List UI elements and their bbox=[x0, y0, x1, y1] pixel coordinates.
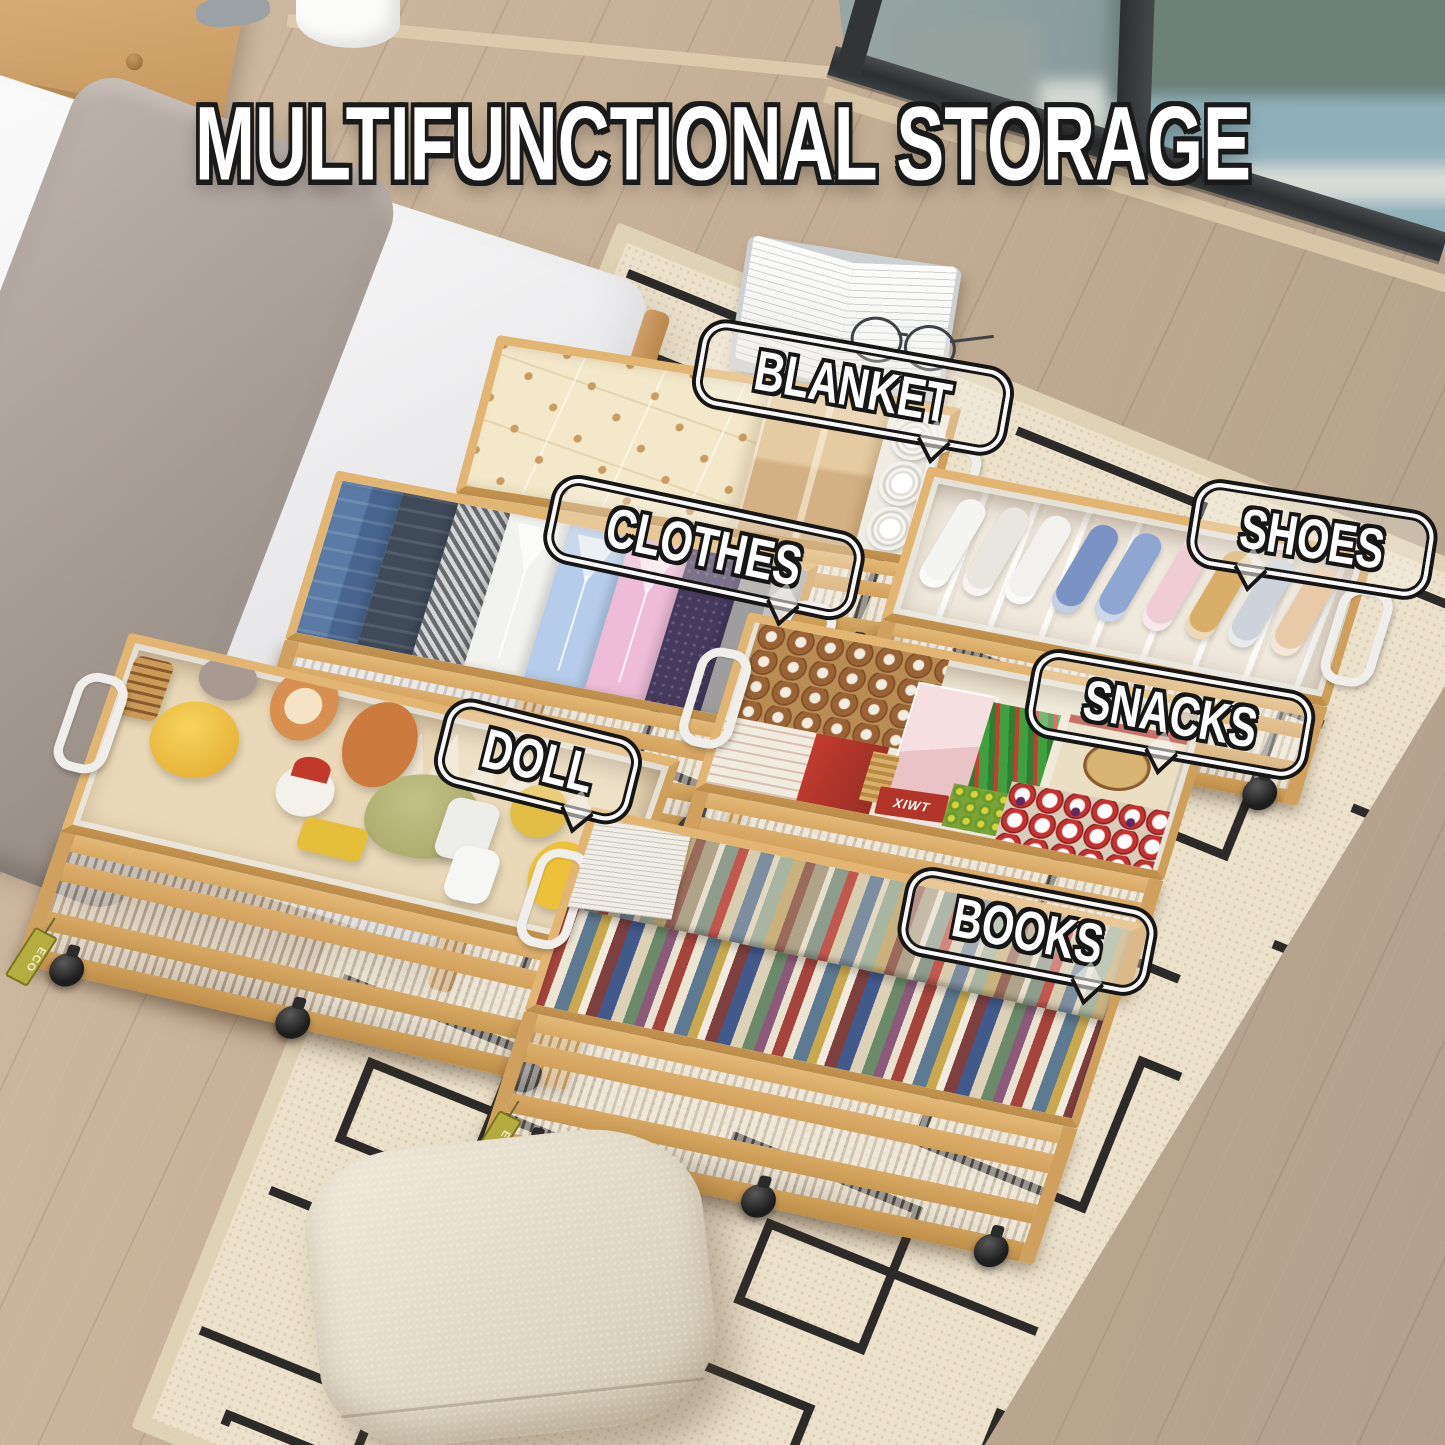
bubble-label-doll: DOLL bbox=[476, 719, 600, 803]
product-photo-canvas: ECO XIWT PEANUTS ECO bbox=[0, 0, 1445, 1445]
bubble-label-books: BOOKS bbox=[947, 888, 1107, 975]
drawer-knob bbox=[125, 52, 145, 72]
floor-pillow bbox=[298, 1118, 725, 1445]
bubble-label-shoes: SHOES bbox=[1236, 499, 1388, 580]
curtain bbox=[296, 0, 400, 48]
gray-slippers bbox=[195, 0, 272, 30]
bubble-label-snacks: SNACKS bbox=[1079, 670, 1262, 758]
plush-bird bbox=[268, 760, 342, 822]
plush-horse bbox=[193, 652, 264, 707]
toy-truck bbox=[295, 816, 370, 863]
headline: MULTIFUNCTIONAL STORAGE bbox=[195, 84, 1251, 205]
chocolate-bar-label: XIWT bbox=[892, 795, 932, 815]
glasses-temple bbox=[950, 335, 994, 343]
